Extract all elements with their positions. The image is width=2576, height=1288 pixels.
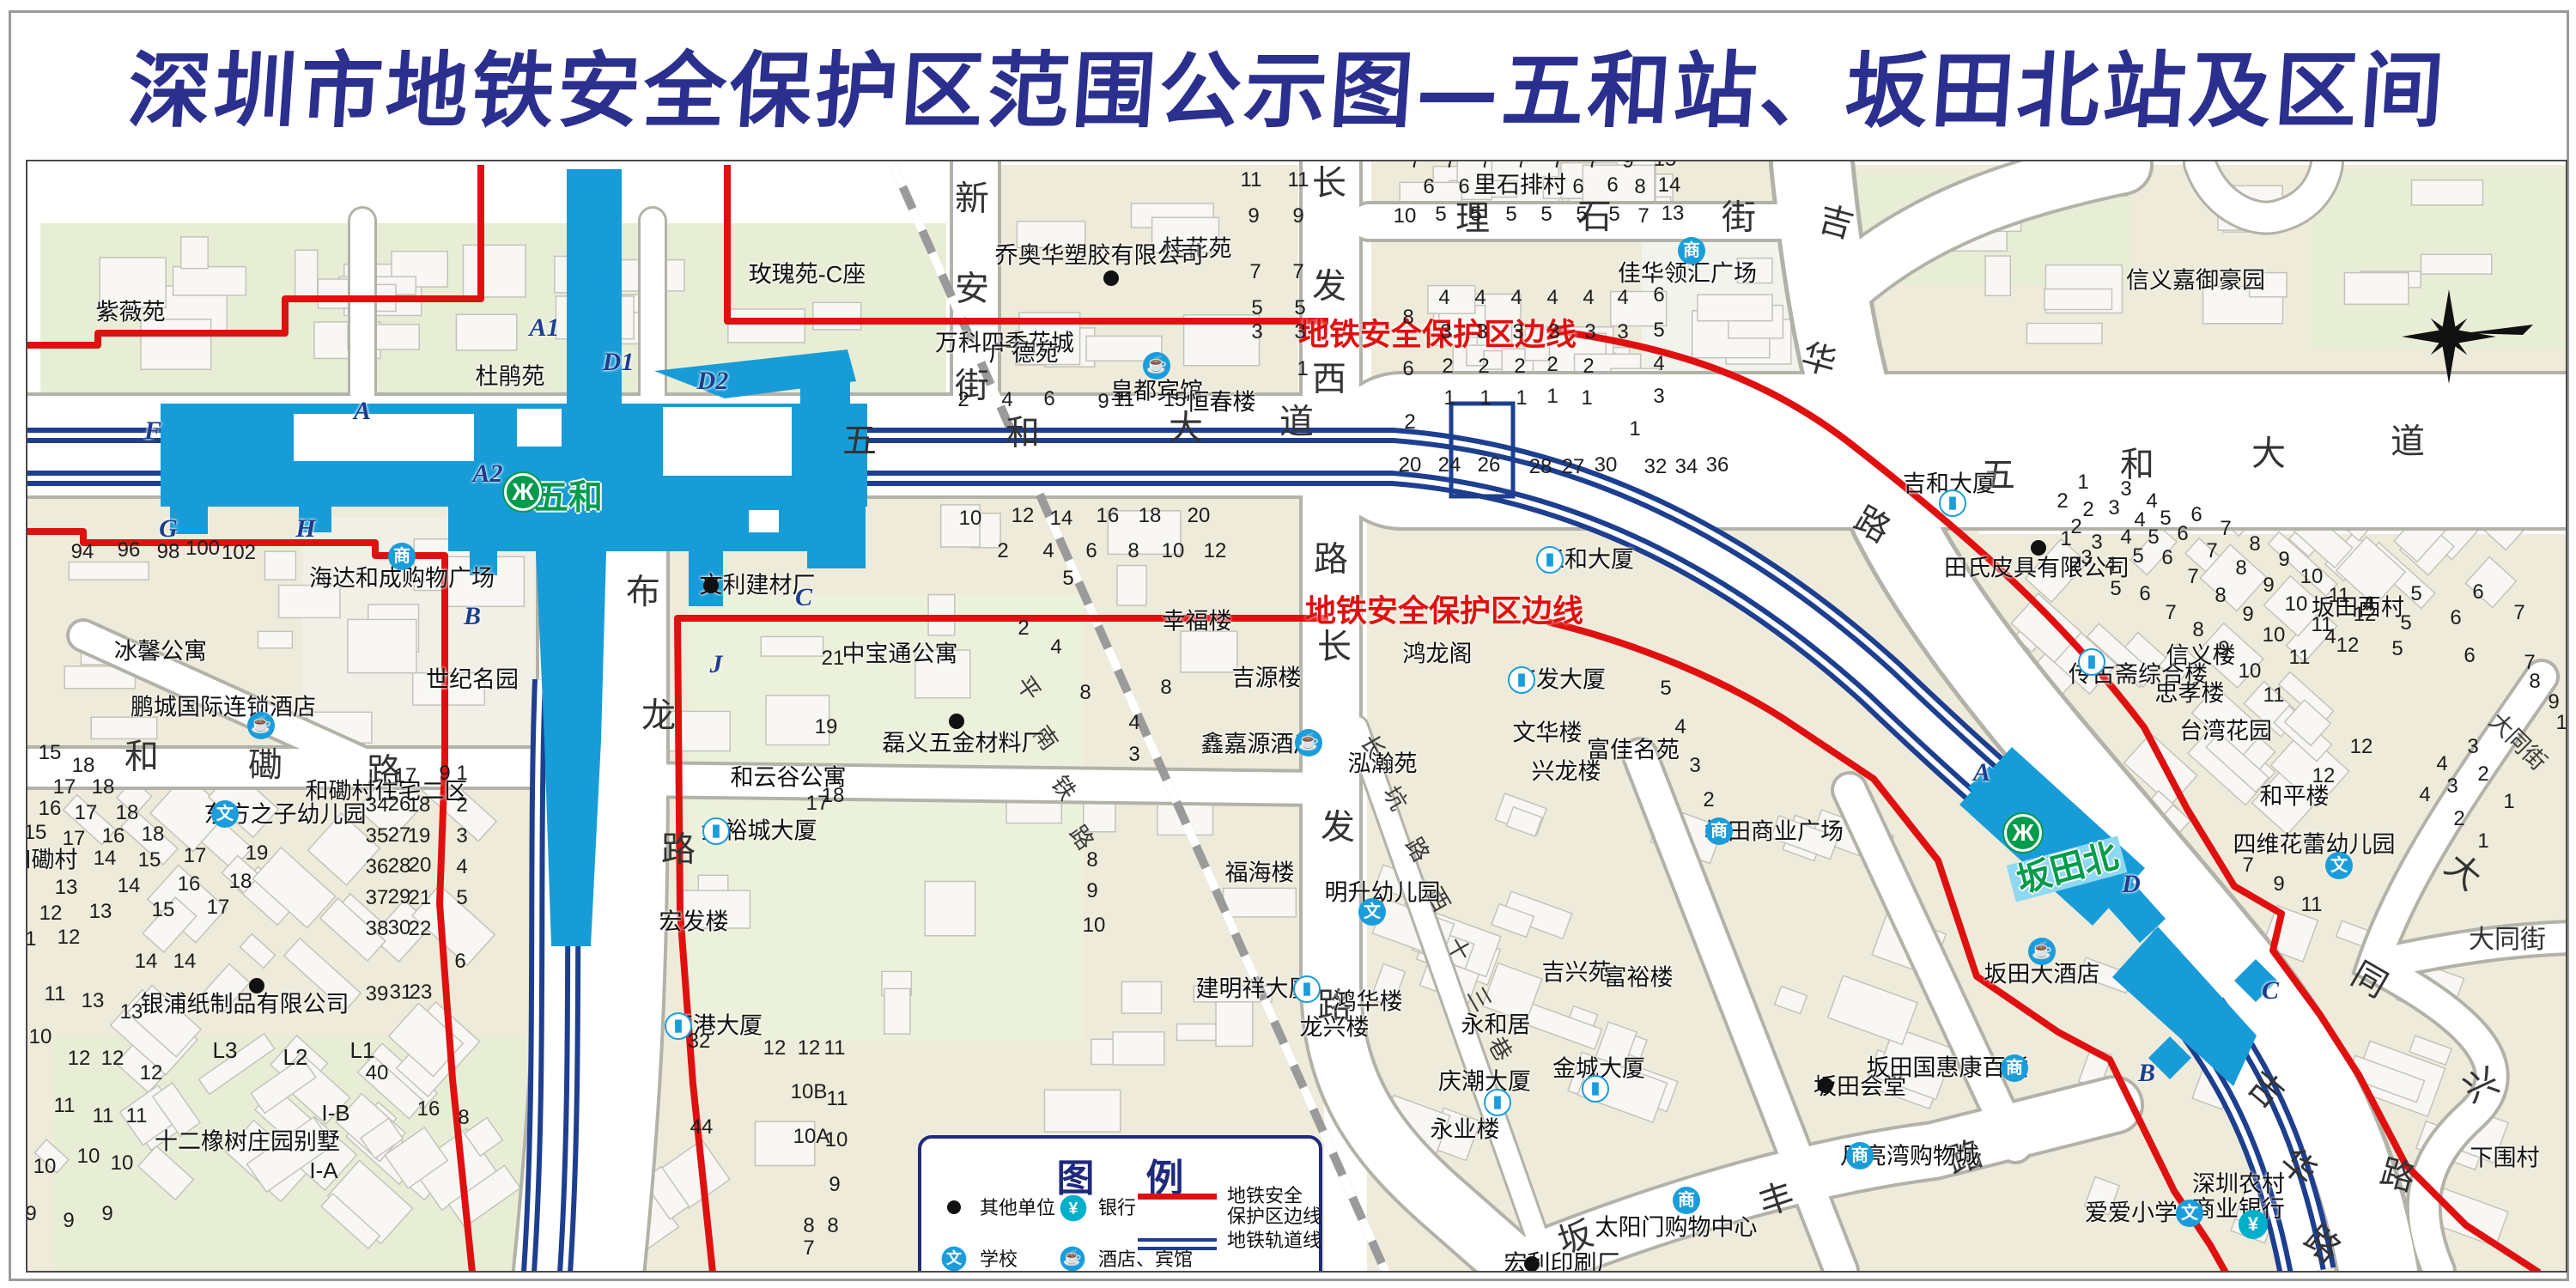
house-number-label: 8: [2235, 557, 2246, 580]
house-number-label: 9: [1097, 391, 1109, 413]
hotel-icon: ☕: [2028, 938, 2056, 965]
house-number-label: 7: [803, 1237, 814, 1260]
house-number-label: 34: [1675, 456, 1698, 478]
house-number-label: 9: [1292, 205, 1303, 228]
road-name-label: 和: [125, 738, 159, 775]
poi-label: 文华楼: [1513, 720, 1583, 745]
house-number-label: 6: [1458, 176, 1469, 198]
house-number-label: 3: [1512, 321, 1523, 343]
building-icon: ▮: [665, 1012, 692, 1040]
house-number-label: 96: [118, 539, 141, 562]
building-icon: ▮: [1939, 489, 1966, 517]
house-number-label: 38: [366, 918, 389, 940]
road-name-label: 和: [1005, 415, 1040, 452]
house-number-label: I-A: [309, 1158, 337, 1182]
building-icon: ▮: [702, 817, 730, 845]
poi-label: 鸿华楼: [1334, 989, 1403, 1014]
poi-label: 中宝通公寓: [842, 641, 958, 666]
road-name-label: 路: [661, 831, 696, 868]
hotel-icon: ☕: [1060, 1247, 1085, 1272]
house-number-label: 4: [2120, 526, 2131, 549]
protection-line-label: 地铁安全保护区边线: [1305, 595, 1583, 629]
house-number-label: 13: [55, 877, 78, 899]
page-title: 深圳市地铁安全保护区范围公示图—五和站、坂田北站及区间: [0, 24, 2576, 143]
house-number-label: 1: [2503, 791, 2514, 813]
house-number-label: 3: [1584, 321, 1595, 343]
wen-icon: 文: [2176, 1200, 2203, 1227]
house-number-label: 17: [806, 793, 829, 815]
house-number-label: 1: [1546, 386, 1558, 408]
house-number-label: 9: [1248, 205, 1259, 228]
house-number-label: 30: [1595, 454, 1618, 477]
house-number-label: 11: [126, 1105, 148, 1127]
station-exit-label: A: [1973, 759, 1990, 787]
house-number-label: 18: [116, 802, 139, 824]
station-exit-label: B: [2138, 1060, 2155, 1087]
house-number-label: 10: [77, 1145, 100, 1168]
house-number-label: 12: [101, 1048, 125, 1070]
house-number-label: 37: [366, 887, 389, 909]
poi-label: 吉源楼: [1232, 665, 1302, 690]
house-number-label: 2: [2057, 490, 2068, 513]
house-number-label: 12: [140, 1062, 163, 1084]
poi-label: 太阳门购物中心: [1595, 1215, 1758, 1240]
house-number-label: 3: [1617, 321, 1628, 343]
poi-label: 恒春楼: [1187, 390, 1256, 415]
house-number-label: 3: [1548, 321, 1559, 343]
house-number-label: 8: [2249, 533, 2260, 556]
protection-line-label: 地铁安全保护区边线: [1298, 319, 1577, 352]
house-number-label: 5: [1505, 204, 1516, 226]
house-number-label: 8: [827, 1215, 838, 1237]
house-number-label: 13: [89, 901, 112, 923]
house-number-label: 2: [957, 389, 969, 411]
house-number-label: 2: [1404, 411, 1415, 434]
house-number-label: 5: [1062, 568, 1073, 590]
station-exit-label: F: [144, 417, 161, 445]
hotel-icon: ☕: [1295, 729, 1322, 756]
house-number-label: 4: [2146, 490, 2157, 513]
dot-icon: [249, 978, 264, 993]
house-number-label: 8: [2192, 619, 2203, 641]
house-number-label: 3: [1294, 321, 1305, 343]
house-number-label: 7: [2206, 540, 2217, 562]
house-number-label: 15: [39, 742, 62, 764]
house-number-label: 10B: [791, 1081, 828, 1103]
road-name-label: 发: [1312, 268, 1346, 305]
poi-label: 下围村: [2470, 1145, 2540, 1170]
house-number-label: 20: [1399, 454, 1422, 477]
house-number-label: 10: [2556, 712, 2567, 734]
road-name-label: 大同街: [2469, 927, 2546, 954]
poi-label: 银浦纸制品有限公司: [141, 992, 349, 1017]
house-number-label: 17: [63, 828, 86, 850]
house-number-label: 2: [2453, 808, 2464, 830]
house-number-label: 17: [53, 776, 76, 799]
house-number-label: 6: [2190, 504, 2202, 526]
poi-label: 兴龙楼: [1532, 759, 1601, 784]
dot-icon: [703, 578, 719, 593]
poi-label: 十二橡树庄园别墅: [155, 1129, 340, 1154]
house-number-label: 4: [1674, 716, 1686, 738]
house-number-label: 6: [2139, 583, 2150, 605]
house-number-label: 4: [2105, 554, 2116, 576]
poi-label: 庆潮大厦: [1438, 1069, 1531, 1094]
house-number-label: 36: [366, 856, 389, 878]
poi-label: 爱爱小学: [2085, 1200, 2178, 1225]
house-number-label: 15: [1163, 389, 1187, 411]
house-number-label: 3: [1440, 321, 1451, 343]
house-number-label: 2: [1546, 354, 1558, 376]
poi-label: 坂田大酒店: [1984, 962, 2100, 987]
house-number-label: 11: [45, 983, 66, 1005]
house-number-label: 13: [82, 990, 105, 1012]
house-number-label: 10: [2263, 624, 2286, 647]
house-number-label: 14: [118, 875, 141, 897]
house-number-label: 4: [1128, 712, 1139, 734]
poi-label: 紫薇苑: [96, 300, 166, 325]
metro-icon: Ж: [504, 473, 542, 511]
house-number-label: 16: [1097, 505, 1120, 527]
house-number-label: 6: [2161, 547, 2172, 569]
shang-icon: 商: [1846, 1142, 1874, 1170]
house-number-label: 6: [2450, 607, 2461, 629]
road-name-label: 磡: [248, 747, 283, 784]
poi-label: 杜鹃苑: [476, 364, 545, 389]
house-number-label: 10: [1162, 540, 1185, 562]
house-number-label: 14: [1658, 174, 1681, 197]
house-number-label: 1: [1479, 387, 1491, 410]
house-number-label: 10: [825, 1129, 848, 1151]
house-number-label: 10: [1083, 914, 1106, 937]
house-number-label: 9: [439, 762, 450, 785]
building-icon: ▮: [1508, 666, 1535, 694]
house-number-label: 10: [2300, 566, 2324, 588]
house-number-label: L3: [213, 1038, 238, 1062]
house-number-label: 16: [102, 825, 125, 848]
building-icon: ▮: [2078, 648, 2105, 676]
house-number-label: 18: [229, 871, 252, 893]
house-number-label: 9: [2263, 574, 2274, 597]
poi-label: 广德苑: [989, 341, 1059, 366]
poi-label: 玫瑰苑-C座: [749, 262, 866, 287]
road-name-label: 街: [1722, 199, 1756, 236]
house-number-label: 10: [959, 507, 982, 530]
legend-item-label: 地铁轨道线: [1227, 1230, 1321, 1251]
road-name-label: 西: [1312, 361, 1346, 398]
house-number-label: 94: [71, 541, 94, 563]
house-number-label: 5: [1608, 204, 1619, 226]
house-number-label: 4: [1042, 540, 1054, 562]
house-number-label: L2: [283, 1045, 308, 1069]
house-number-label: 9: [2242, 604, 2253, 626]
house-number-label: 28: [1529, 456, 1552, 478]
house-number-label: 5: [2391, 638, 2403, 660]
house-number-label: 14: [1050, 507, 1073, 530]
house-number-label: 7: [2513, 602, 2524, 624]
house-number-label: 11: [827, 1088, 848, 1110]
hotel-icon: ☕: [1143, 352, 1170, 380]
poi-label: 忠孝楼: [2155, 681, 2225, 706]
house-number-label: 7: [2187, 566, 2198, 588]
house-number-label: 18: [142, 823, 165, 846]
house-number-label: 5: [456, 887, 467, 909]
house-number-label: 8: [2215, 585, 2226, 607]
road-name-label: 长: [1312, 165, 1346, 202]
house-number-label: 3: [2091, 532, 2102, 554]
house-number-label: 6: [2472, 581, 2483, 604]
house-number-label: 7: [2242, 854, 2253, 877]
legend-item-label: 其他单位: [980, 1198, 1055, 1218]
house-number-label: 16: [178, 873, 201, 896]
house-number-label: 6: [2177, 523, 2188, 545]
house-number-label: 40: [366, 1062, 389, 1084]
house-number-label: 4: [1546, 287, 1558, 309]
house-number-label: 11: [1241, 169, 1262, 191]
house-number-label: 7: [1516, 160, 1527, 173]
station-name-label: 五和: [534, 479, 603, 516]
house-number-label: 8: [1127, 540, 1139, 562]
house-number-label: 3: [1251, 321, 1262, 343]
house-number-label: 2: [1514, 355, 1525, 378]
house-number-label: 35: [366, 825, 389, 848]
house-number-label: 6: [1572, 176, 1583, 198]
house-number-label: 5: [1435, 204, 1446, 226]
house-number-label: 29: [388, 886, 411, 908]
legend-item-label: 地铁安全 保护区边线: [1227, 1186, 1321, 1227]
house-number-label: 5: [2160, 507, 2171, 530]
house-number-label: 6: [1607, 174, 1618, 197]
house-number-label: 20: [1188, 505, 1211, 527]
house-number-label: 4: [1438, 287, 1449, 309]
house-number-label: 8: [1079, 682, 1091, 704]
house-number-label: 14: [173, 951, 197, 973]
road-name-label: 长: [1317, 629, 1352, 665]
house-number-label: 13: [1662, 203, 1685, 225]
poi-label: 里石排村: [1473, 173, 1566, 197]
station-exit-label: D1: [603, 349, 635, 376]
poi-label: 鸿龙阁: [1403, 641, 1473, 666]
road-name-label: 五: [842, 422, 877, 459]
dot-icon: [1524, 1256, 1540, 1272]
poi-label: 福海楼: [1225, 860, 1295, 885]
building-icon: ▮: [1484, 1089, 1511, 1116]
house-number-label: 3: [2120, 478, 2131, 501]
wen-icon: 文: [211, 800, 239, 828]
house-number-label: 17: [184, 845, 207, 867]
shang-icon: 商: [2001, 1054, 2028, 1082]
house-number-label: 7: [1587, 160, 1598, 173]
house-number-label: 10: [2239, 660, 2262, 683]
metro-icon: Ж: [2004, 814, 2042, 852]
legend-item-label: 酒店、宾馆: [1098, 1249, 1193, 1270]
poi-label: 和磡村: [26, 848, 78, 872]
poi-label: 佳华领汇广场: [1618, 261, 1757, 286]
dot-icon: [949, 714, 964, 729]
house-number-label: 12: [2350, 736, 2373, 758]
wen-icon: 文: [2325, 852, 2353, 879]
house-number-label: 16: [417, 1098, 440, 1121]
house-number-label: 4: [456, 856, 467, 878]
house-number-label: 8: [803, 1215, 814, 1237]
map-area[interactable]: 新安街长发西路长发路理石街五和大道五和大道布龙路和磡路吉华路吉华路坂丰路长坑路西…: [26, 160, 2567, 1273]
poi-label: 宏发楼: [659, 909, 729, 934]
house-number-label: 10: [1394, 205, 1417, 228]
dot-icon: [1103, 270, 1119, 286]
house-number-label: 8: [1160, 677, 1171, 699]
house-number-label: 2: [997, 540, 1008, 562]
station-exit-label: J: [710, 651, 723, 678]
road-name-label: 发: [1321, 809, 1355, 846]
house-number-label: 17: [207, 896, 230, 919]
house-number-label: 5: [2400, 612, 2411, 635]
house-number-label: 5: [2148, 526, 2159, 549]
station-exit-label: H: [295, 515, 315, 543]
house-number-label: 6: [1653, 284, 1664, 307]
house-number-label: 6: [1402, 358, 1413, 380]
house-number-label: 21: [409, 887, 432, 909]
building-icon: ▮: [1293, 975, 1321, 1003]
house-number-label: 4: [1474, 287, 1485, 309]
shang-icon: 商: [1705, 817, 1733, 845]
house-number-label: 27: [1562, 456, 1585, 478]
poi-label: 幸福楼: [1163, 609, 1232, 634]
house-number-label: 20: [409, 854, 432, 877]
house-number-label: 32: [688, 1030, 711, 1053]
house-number-label: 5: [1660, 677, 1671, 700]
house-number-label: 6: [1423, 176, 1434, 198]
road-name-label: 新: [955, 180, 989, 217]
house-number-label: 12: [798, 1037, 821, 1060]
house-number-label: 1: [1297, 358, 1308, 380]
house-number-label: 5: [1470, 204, 1481, 226]
house-number-label: 3: [2081, 547, 2092, 569]
poi-label: 永业楼: [1431, 1117, 1500, 1142]
house-number-label: 100: [185, 538, 220, 560]
house-number-label: 3: [1128, 744, 1139, 766]
house-number-label: 7: [2220, 518, 2231, 540]
house-number-label: 2: [1442, 355, 1453, 378]
house-number-label: 4: [1050, 636, 1061, 659]
house-number-label: 44: [690, 1116, 714, 1139]
house-number-label: 7: [2165, 602, 2176, 624]
house-number-label: 11: [26, 928, 36, 951]
house-number-label: 7: [1249, 261, 1261, 283]
house-number-label: 1: [1443, 387, 1455, 410]
station-exit-label: B: [464, 603, 481, 630]
house-number-label: 12: [1012, 505, 1035, 527]
poi-label: 田氏皮具有限公司: [1944, 556, 2129, 580]
house-number-label: 10: [29, 1026, 52, 1048]
house-number-label: 9: [2218, 638, 2229, 660]
hotel-icon: ☕: [247, 712, 275, 739]
house-number-label: 6: [1043, 388, 1054, 410]
house-number-label: 8: [1086, 849, 1097, 872]
house-number-label: 6: [1085, 540, 1097, 562]
road-name-label: 大: [2251, 435, 2286, 472]
house-number-label: 17: [75, 802, 98, 824]
house-number-label: 18: [72, 755, 95, 777]
road-name-label: 安: [955, 270, 989, 307]
poi-label: 明升幼儿园: [1325, 880, 1441, 905]
shang-icon: 商: [1678, 237, 1705, 264]
house-number-label: 17: [394, 765, 417, 787]
house-number-label: 2: [1478, 355, 1489, 378]
house-number-label: 3: [2446, 775, 2458, 798]
house-number-label: 5: [2132, 545, 2143, 568]
house-number-label: 4: [2324, 626, 2336, 648]
poi-label: 冰馨公寓: [114, 639, 207, 664]
house-number-label: 11: [2301, 894, 2323, 916]
poi-label: 永和居: [1461, 1012, 1531, 1037]
house-number-label: 32: [1644, 456, 1668, 478]
station-exit-label: D2: [697, 368, 729, 395]
house-number-label: 8: [1402, 307, 1413, 329]
station-exit-label: A2: [472, 460, 502, 488]
house-number-label: 18: [1139, 505, 1162, 527]
house-number-label: 12: [763, 1037, 787, 1060]
house-number-label: 4: [1001, 389, 1012, 411]
house-number-label: 21: [822, 647, 845, 670]
poi-label: 磊义五金材料厂: [883, 731, 1045, 756]
house-number-label: 2: [2070, 516, 2081, 538]
poi-label: 鹏城国际连锁酒店: [131, 695, 316, 720]
house-number-label: 2: [1583, 355, 1594, 378]
house-number-label: 9: [26, 1203, 37, 1225]
station-exit-label: A: [354, 398, 371, 425]
road-name-label: 大: [1169, 410, 1203, 447]
road-name-label: 龙: [641, 697, 676, 734]
house-number-label: 7: [1444, 160, 1455, 173]
poi-label: 四维花蕾幼儿园: [2233, 832, 2396, 857]
house-number-label: 9: [1086, 880, 1097, 902]
dot-icon: [1818, 1078, 1833, 1093]
house-number-label: 1: [1629, 418, 1640, 440]
house-number-label: 11: [2329, 585, 2350, 607]
house-number-label: 102: [222, 542, 256, 564]
house-number-label: 39: [366, 983, 389, 1005]
house-number-label: 13: [120, 1001, 143, 1024]
poi-label: 龙兴楼: [1300, 1015, 1370, 1040]
house-number-label: 11: [2263, 684, 2285, 707]
legend-item-label: 银行: [1098, 1198, 1136, 1218]
house-number-label: 30: [388, 917, 411, 939]
wen-icon: 文: [942, 1247, 967, 1272]
house-number-label: 7: [1552, 160, 1563, 173]
house-number-label: 7: [1292, 261, 1303, 283]
house-number-label: 11: [2289, 647, 2311, 669]
house-number-label: 2: [1703, 789, 1714, 811]
house-number-label: 26: [1478, 454, 1501, 477]
house-number-label: 10: [111, 1152, 134, 1175]
house-number-label: L1: [350, 1038, 375, 1062]
house-number-label: 19: [815, 716, 838, 738]
house-number-label: 5: [1653, 319, 1664, 342]
house-number-label: 1: [1581, 387, 1592, 410]
house-number-label: 4: [2419, 784, 2430, 806]
house-number-label: 98: [157, 541, 180, 563]
house-number-label: 11: [54, 1095, 76, 1117]
house-number-label: 3: [1689, 755, 1700, 777]
house-number-label: 4: [2436, 753, 2447, 775]
house-number-label: 14: [135, 951, 158, 973]
house-number-label: 12: [39, 902, 63, 925]
house-number-label: 15: [138, 849, 161, 872]
house-number-label: 3: [2467, 736, 2478, 758]
house-number-label: 34: [366, 794, 389, 817]
bank-icon: ¥: [1060, 1195, 1087, 1222]
road-name-label: 路: [1314, 541, 1348, 578]
